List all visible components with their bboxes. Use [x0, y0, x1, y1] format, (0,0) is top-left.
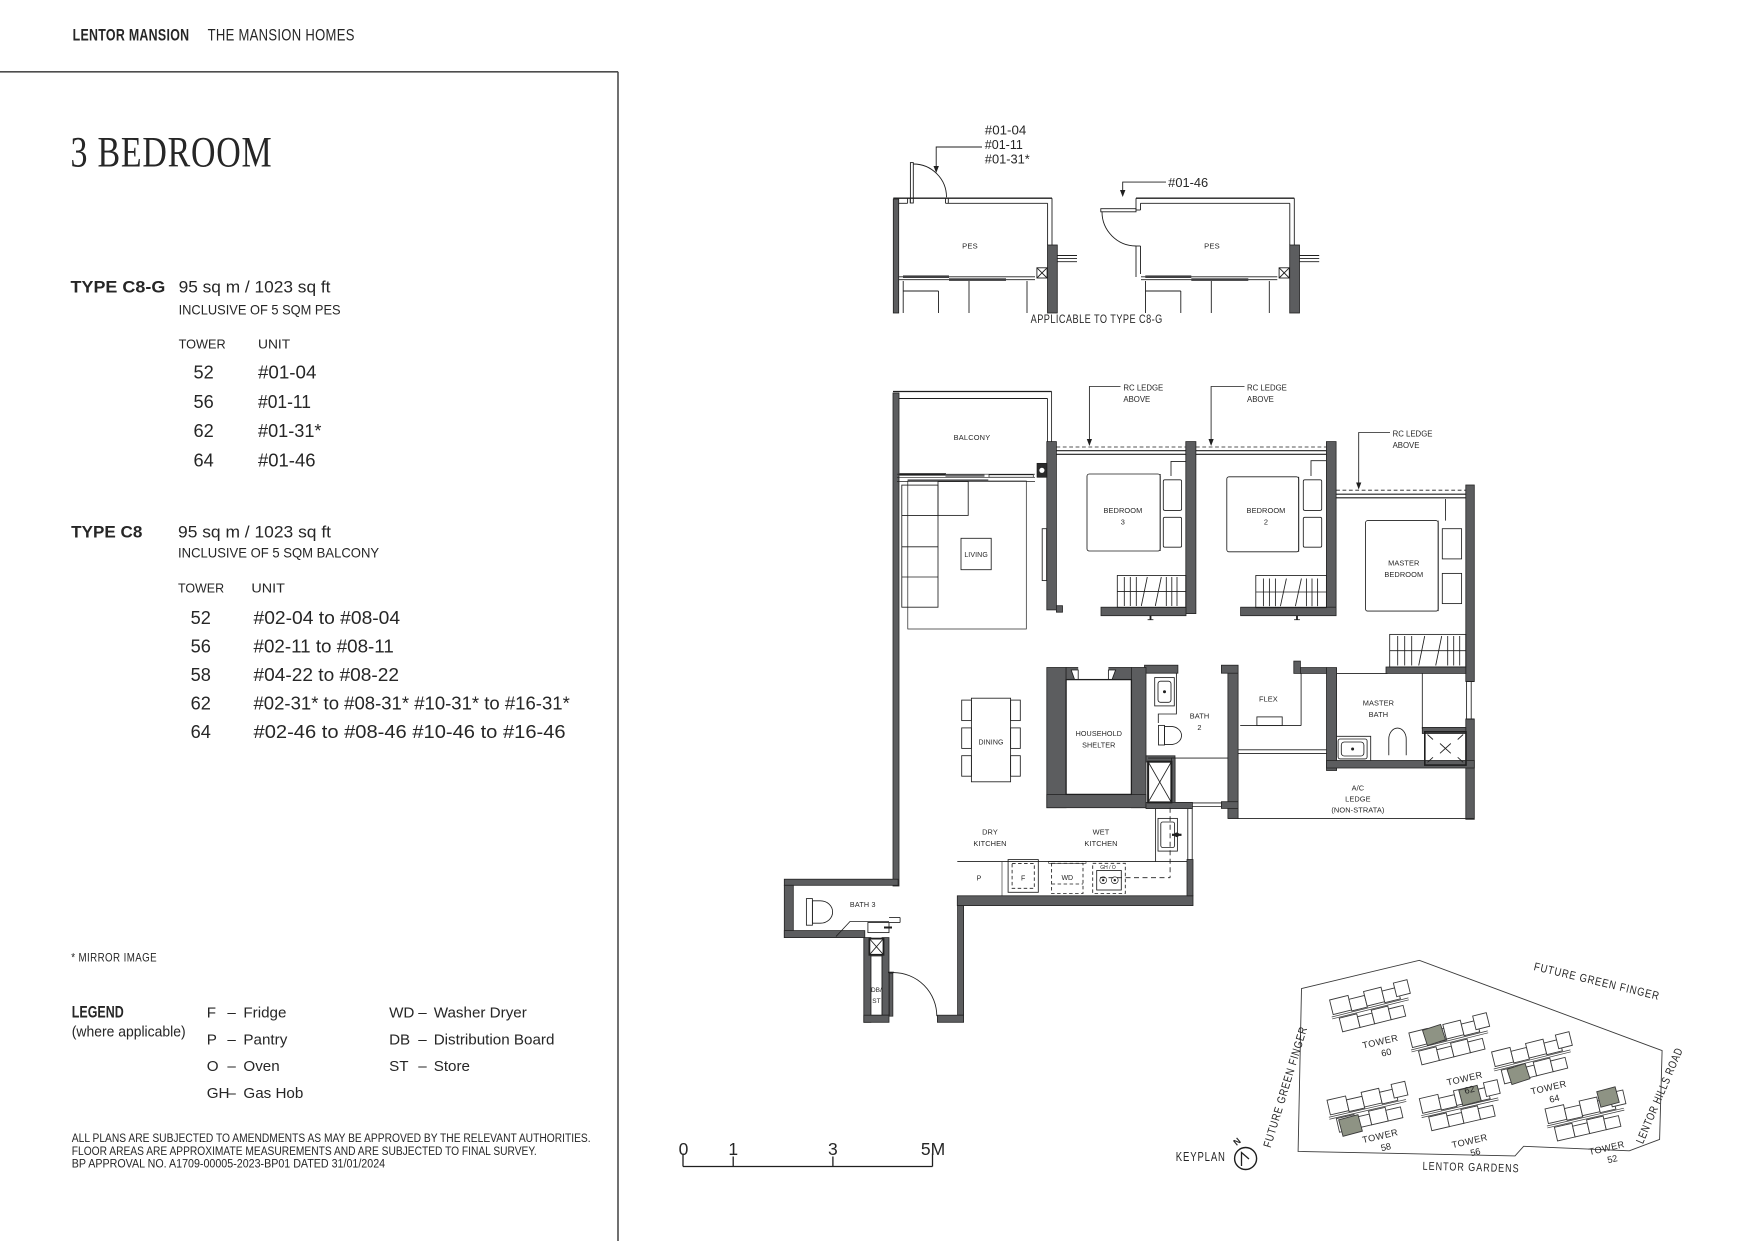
svg-text:ALL PLANS ARE SUBJECTED TO AME: ALL PLANS ARE SUBJECTED TO AMENDMENTS AS…: [72, 1131, 591, 1145]
svg-text:ABOVE: ABOVE: [1393, 441, 1420, 450]
svg-text:APPLICABLE TO TYPE C8-G: APPLICABLE TO TYPE C8-G: [1031, 312, 1163, 326]
svg-text:N: N: [1231, 1136, 1242, 1148]
svg-text:#02-04 to #08-04: #02-04 to #08-04: [254, 608, 401, 628]
svg-text:(NON-STRATA): (NON-STRATA): [1331, 806, 1384, 815]
svg-text:#01-31*: #01-31*: [258, 421, 322, 441]
svg-text:Fridge: Fridge: [243, 1005, 286, 1022]
svg-text:3 BEDROOM: 3 BEDROOM: [71, 129, 273, 177]
svg-text:64: 64: [1548, 1093, 1560, 1105]
svg-text:52: 52: [191, 608, 211, 628]
svg-text:TOWER: TOWER: [179, 337, 226, 352]
svg-text:PES: PES: [962, 242, 978, 251]
svg-text:HOUSEHOLD: HOUSEHOLD: [1076, 729, 1122, 738]
svg-text:52: 52: [194, 363, 214, 383]
svg-text:56: 56: [1469, 1146, 1481, 1158]
svg-text:#02-46 to #08-46 #10-46: #02-46 to #08-46 #10-46 to #16-46: [254, 722, 566, 742]
svg-text:TYPE C8: TYPE C8: [71, 523, 142, 542]
svg-text:ST: ST: [389, 1058, 408, 1075]
svg-text:GH / O: GH / O: [1100, 865, 1116, 871]
svg-text:FLEX: FLEX: [1259, 695, 1278, 704]
svg-text:95 sq m / 1023 sq ft: 95 sq m / 1023 sq ft: [179, 277, 331, 296]
svg-text:Pantry: Pantry: [243, 1032, 287, 1049]
svg-text:FUTURE GREEN FINGER: FUTURE GREEN FINGER: [1262, 1025, 1310, 1149]
svg-text:MASTER: MASTER: [1388, 559, 1419, 568]
svg-text:WET: WET: [1093, 828, 1110, 837]
svg-text:UNIT: UNIT: [251, 581, 285, 596]
svg-text:Washer Dryer: Washer Dryer: [434, 1005, 527, 1022]
svg-text:O: O: [207, 1058, 219, 1075]
svg-text:1: 1: [728, 1139, 738, 1159]
svg-text:–: –: [227, 1058, 236, 1075]
svg-text:TYPE C8-G: TYPE C8-G: [71, 277, 166, 296]
svg-text:#01-11: #01-11: [258, 392, 311, 412]
svg-text:62: 62: [191, 694, 211, 714]
svg-text:ST: ST: [872, 998, 880, 1005]
svg-text:PES: PES: [1204, 242, 1220, 251]
svg-text:LENTOR MANSION: LENTOR MANSION: [73, 26, 190, 45]
svg-text:LEDGE: LEDGE: [1345, 795, 1371, 804]
svg-text:DRY: DRY: [982, 828, 998, 837]
svg-text:62: 62: [194, 421, 214, 441]
svg-text:DB: DB: [389, 1032, 410, 1049]
svg-text:KITCHEN: KITCHEN: [1084, 839, 1117, 848]
svg-text:SHELTER: SHELTER: [1082, 741, 1115, 750]
svg-text:THE MANSION HOMES: THE MANSION HOMES: [208, 26, 355, 45]
svg-text:BEDROOM: BEDROOM: [1384, 570, 1423, 579]
svg-text:LEGEND: LEGEND: [72, 1004, 124, 1022]
svg-text:ABOVE: ABOVE: [1123, 395, 1150, 404]
svg-text:INCLUSIVE OF 5 SQM BALCONY: INCLUSIVE OF 5 SQM BALCONY: [178, 546, 379, 561]
svg-text:56: 56: [191, 637, 211, 657]
svg-text:60: 60: [1380, 1047, 1392, 1059]
svg-text:BP APPROVAL NO. A1709-00005-20: BP APPROVAL NO. A1709-00005-2023-BP01 DA…: [72, 1157, 385, 1171]
svg-text:WD: WD: [389, 1005, 414, 1022]
svg-text:TOWER: TOWER: [178, 581, 224, 596]
svg-text:BATH: BATH: [1369, 710, 1389, 719]
svg-text:BATH: BATH: [1190, 712, 1210, 721]
svg-text:A/C: A/C: [1352, 784, 1365, 793]
svg-text:Gas Hob: Gas Hob: [243, 1085, 303, 1102]
svg-text:#04-22 to #08-22: #04-22 to #08-22: [254, 665, 400, 685]
svg-text:FLOOR AREAS ARE APPROXIMATE ME: FLOOR AREAS ARE APPROXIMATE MEASUREMENTS…: [72, 1144, 537, 1158]
svg-text:64: 64: [194, 450, 214, 470]
svg-text:P: P: [207, 1032, 217, 1049]
svg-text:* MIRROR IMAGE: * MIRROR IMAGE: [71, 950, 157, 964]
svg-text:DB/: DB/: [871, 987, 882, 994]
svg-text:0: 0: [679, 1139, 689, 1159]
svg-text:F: F: [1021, 876, 1025, 883]
svg-text:#01-31*: #01-31*: [985, 152, 1030, 166]
svg-text:BALCONY: BALCONY: [954, 433, 991, 442]
svg-text:56: 56: [194, 392, 214, 412]
svg-text:KEYPLAN: KEYPLAN: [1176, 1149, 1226, 1164]
svg-text:BEDROOM: BEDROOM: [1247, 506, 1286, 515]
svg-text:–: –: [418, 1032, 427, 1049]
svg-text:95 sq m / 1023 sq ft: 95 sq m / 1023 sq ft: [178, 523, 331, 542]
svg-text:KITCHEN: KITCHEN: [973, 839, 1006, 848]
svg-text:BATH 3: BATH 3: [850, 900, 876, 909]
svg-text:F: F: [207, 1005, 216, 1022]
svg-text:Store: Store: [434, 1058, 470, 1075]
svg-text:–: –: [227, 1032, 236, 1049]
svg-text:5M: 5M: [921, 1139, 945, 1159]
svg-text:#02-11 to #08-11: #02-11 to #08-11: [254, 637, 394, 657]
svg-text:GH: GH: [207, 1085, 230, 1102]
svg-text:–: –: [227, 1005, 236, 1022]
svg-text:52: 52: [1606, 1153, 1618, 1165]
svg-text:–: –: [227, 1085, 236, 1102]
svg-text:MASTER: MASTER: [1363, 699, 1394, 708]
svg-text:#01-04: #01-04: [985, 124, 1027, 138]
svg-text:–: –: [418, 1058, 427, 1075]
svg-text:2: 2: [1197, 723, 1201, 732]
svg-text:64: 64: [191, 722, 211, 742]
svg-text:LENTOR GARDENS: LENTOR GARDENS: [1422, 1161, 1519, 1176]
svg-text:RC LEDGE: RC LEDGE: [1123, 384, 1163, 393]
svg-text:#01-46: #01-46: [1168, 176, 1208, 190]
svg-text:INCLUSIVE OF 5 SQM PES: INCLUSIVE OF 5 SQM PES: [179, 302, 341, 317]
svg-text:(where applicable): (where applicable): [72, 1024, 186, 1041]
svg-text:BEDROOM: BEDROOM: [1103, 506, 1142, 515]
svg-text:Oven: Oven: [243, 1058, 279, 1075]
svg-text:P: P: [977, 876, 982, 883]
svg-text:WD: WD: [1061, 875, 1073, 882]
svg-text:58: 58: [191, 665, 211, 685]
svg-text:58: 58: [1380, 1141, 1392, 1153]
svg-text:3: 3: [828, 1139, 838, 1159]
svg-text:LIVING: LIVING: [964, 552, 988, 559]
svg-text:#02-31* to #08-31* #10-31: #02-31* to #08-31* #10-31* to #16-31*: [254, 694, 570, 714]
svg-text:UNIT: UNIT: [258, 337, 290, 352]
svg-text:#01-11: #01-11: [985, 138, 1023, 152]
svg-text:#01-46: #01-46: [258, 450, 316, 470]
svg-text:RC LEDGE: RC LEDGE: [1247, 384, 1287, 393]
svg-text:#01-04: #01-04: [258, 363, 316, 383]
svg-text:–: –: [418, 1005, 427, 1022]
svg-text:FUTURE GREEN FINGER: FUTURE GREEN FINGER: [1533, 961, 1661, 1003]
svg-text:DINING: DINING: [978, 740, 1003, 747]
svg-text:2: 2: [1264, 518, 1268, 527]
svg-text:RC LEDGE: RC LEDGE: [1393, 430, 1433, 439]
svg-text:ABOVE: ABOVE: [1247, 395, 1274, 404]
svg-text:Distribution Board: Distribution Board: [434, 1032, 555, 1049]
svg-text:3: 3: [1121, 518, 1125, 527]
